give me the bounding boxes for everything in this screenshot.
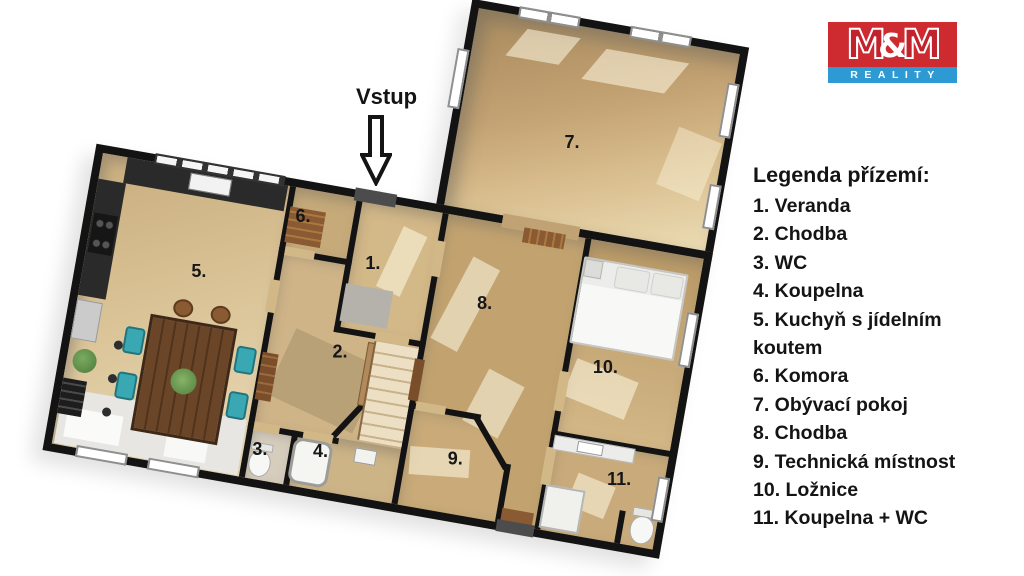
- room-label-technicka: 9.: [448, 448, 463, 469]
- legend-item-kuchyn: 5. Kuchyň s jídelním koutem: [753, 306, 1023, 363]
- legend-item-wc: 3. WC: [753, 249, 1023, 277]
- legend-item-loznice: 10. Ložnice: [753, 476, 1023, 504]
- logo-mm-box: M & M: [828, 22, 957, 67]
- room-label-chodba: 2.: [333, 342, 348, 363]
- entrance-label: Vstup: [356, 84, 417, 110]
- room-label-koupelna: 4.: [313, 441, 328, 462]
- mm-reality-logo: M & M REALITY: [828, 22, 957, 83]
- entrance-arrow-icon: [360, 114, 392, 186]
- room-label-veranda: 1.: [365, 253, 380, 274]
- logo-ampersand: &: [878, 26, 907, 65]
- room-label-kuchyn: 5.: [191, 261, 206, 282]
- legend-title: Legenda přízemí:: [753, 163, 1023, 188]
- room-label-wc: 3.: [252, 439, 267, 460]
- floor-plan: 1. 2. 3. 4. 5. 6. 7. 8. 9. 10. 11.: [52, 153, 704, 549]
- legend-item-chodba: 2. Chodba: [753, 220, 1023, 248]
- room-label-komora: 6.: [295, 206, 310, 227]
- room-label-obyvaci: 7.: [564, 132, 579, 153]
- legend-item-technicka: 9. Technická místnost: [753, 448, 1023, 476]
- legend-item-komora: 6. Komora: [753, 362, 1023, 390]
- nightstand: [583, 258, 604, 279]
- entrance-mat: [339, 283, 393, 329]
- logo-letter-m: M: [902, 24, 939, 66]
- room-label-chodba8: 8.: [477, 293, 492, 314]
- legend-item-veranda: 1. Veranda: [753, 192, 1023, 220]
- room-label-loznice: 10.: [593, 357, 618, 378]
- room-label-koupelna-wc: 11.: [607, 469, 631, 490]
- legend-item-koupelna-wc: 11. Koupelna + WC: [753, 504, 1023, 532]
- shower: [539, 484, 586, 534]
- legend: Legenda přízemí: 1. Veranda 2. Chodba 3.…: [753, 163, 1023, 533]
- legend-item-obyvaci: 7. Obývací pokoj: [753, 391, 1023, 419]
- logo-reality-bar: REALITY: [828, 67, 957, 83]
- legend-item-chodba8: 8. Chodba: [753, 419, 1023, 447]
- screenshot-root: 1. 2. 3. 4. 5. 6. 7. 8. 9. 10. 11. Vstup…: [0, 0, 1024, 576]
- legend-item-koupelna: 4. Koupelna: [753, 277, 1023, 305]
